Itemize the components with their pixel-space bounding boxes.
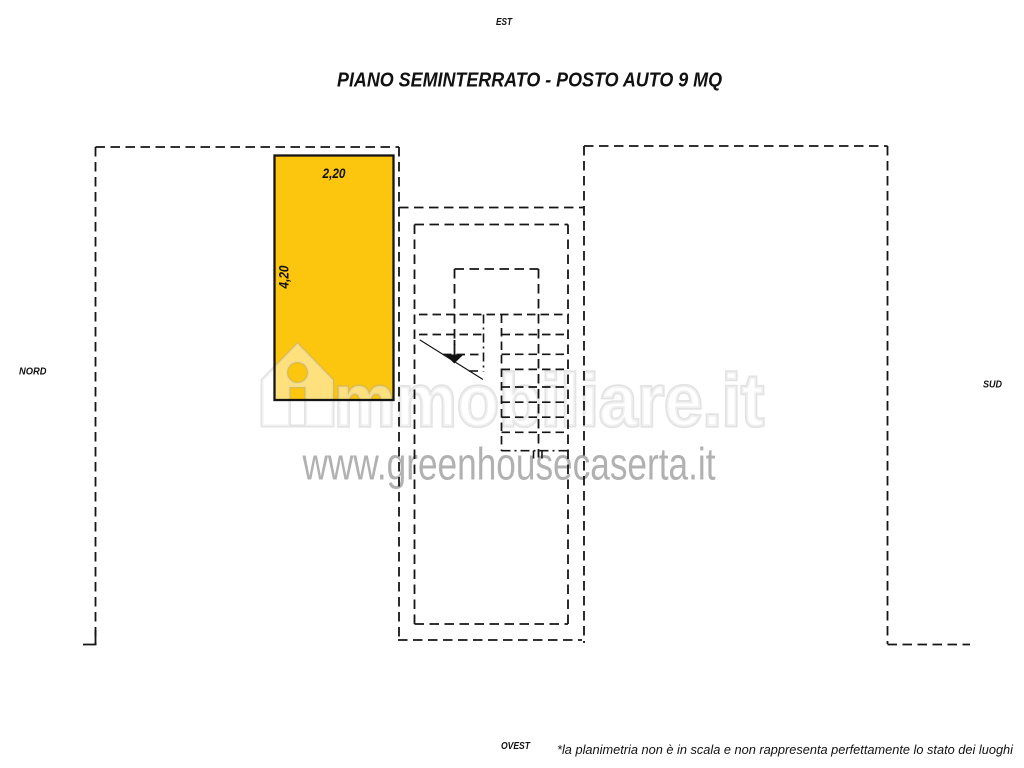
svg-text:SUD: SUD (983, 380, 1002, 391)
svg-text:NORD: NORD (19, 367, 47, 378)
svg-text:2,20: 2,20 (322, 165, 346, 181)
svg-text:4,20: 4,20 (276, 265, 292, 289)
svg-text:mmobiliare.it: mmobiliare.it (334, 359, 764, 442)
svg-text:*la planimetria non è in scala: *la planimetria non è in scala e non rap… (557, 742, 1014, 757)
svg-text:www.greenhousecaserta.it: www.greenhousecaserta.it (302, 439, 716, 490)
svg-text:OVEST: OVEST (501, 741, 531, 752)
svg-text:PIANO SEMINTERRATO - POSTO AUT: PIANO SEMINTERRATO - POSTO AUTO 9 MQ (337, 70, 722, 92)
svg-text:EST: EST (496, 17, 513, 28)
